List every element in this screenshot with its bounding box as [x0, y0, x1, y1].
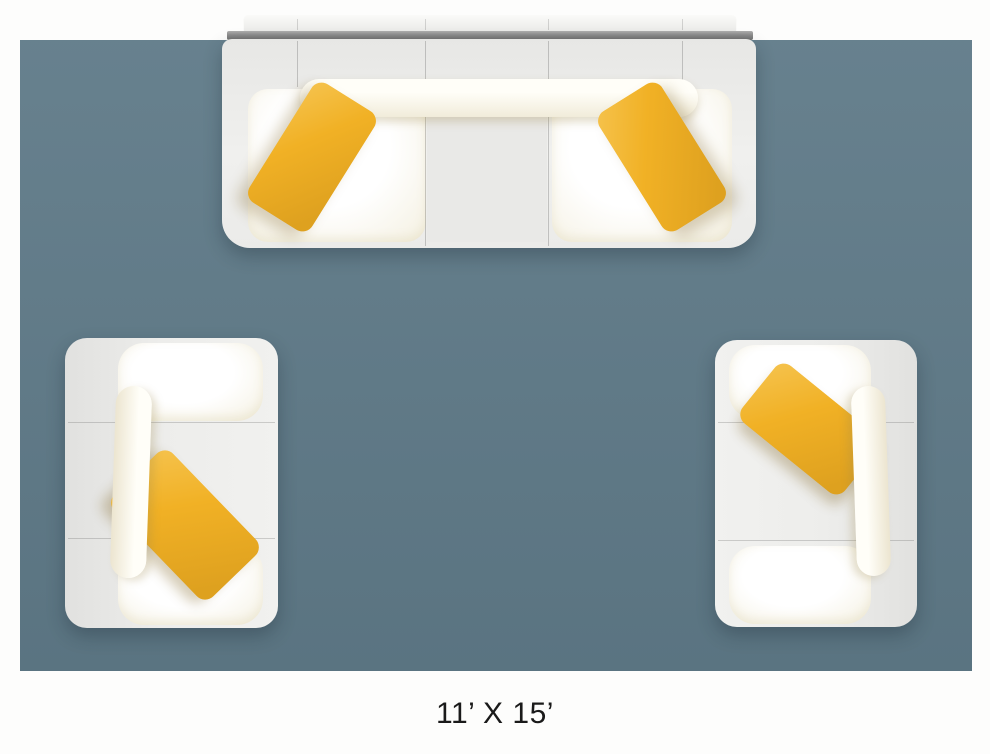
rug-size-label: 11’ X 15’ [0, 697, 990, 731]
back-bolster [110, 385, 153, 578]
loveseat-right [715, 340, 917, 627]
seam-line [425, 19, 426, 30]
seam-line [297, 19, 298, 30]
seam-line [548, 19, 549, 30]
seat-cushion-bottom [729, 546, 871, 624]
seam-line [68, 422, 275, 423]
seam-line [297, 41, 298, 87]
loveseat-left [65, 338, 278, 628]
seam-line [682, 19, 683, 30]
back-bolster [851, 385, 892, 576]
seam-line [425, 41, 426, 246]
rug-size-guide: 11’ X 15’ [0, 0, 990, 754]
seam-line [548, 41, 549, 246]
